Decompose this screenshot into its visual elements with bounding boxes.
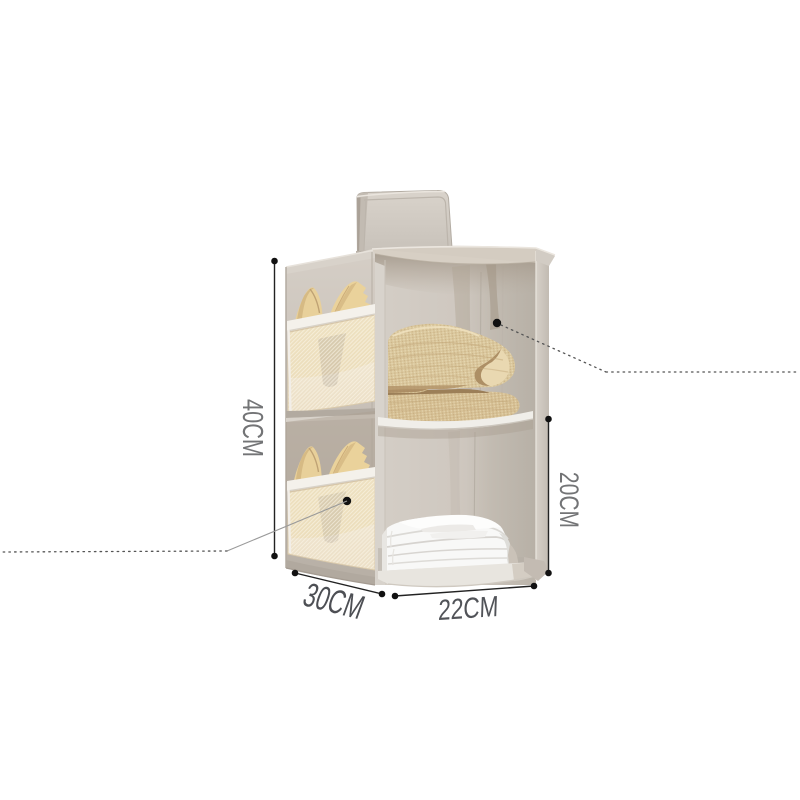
svg-text:20CM: 20CM: [553, 472, 583, 528]
svg-text:40CM: 40CM: [236, 399, 268, 457]
svg-text:22CM: 22CM: [438, 589, 499, 627]
